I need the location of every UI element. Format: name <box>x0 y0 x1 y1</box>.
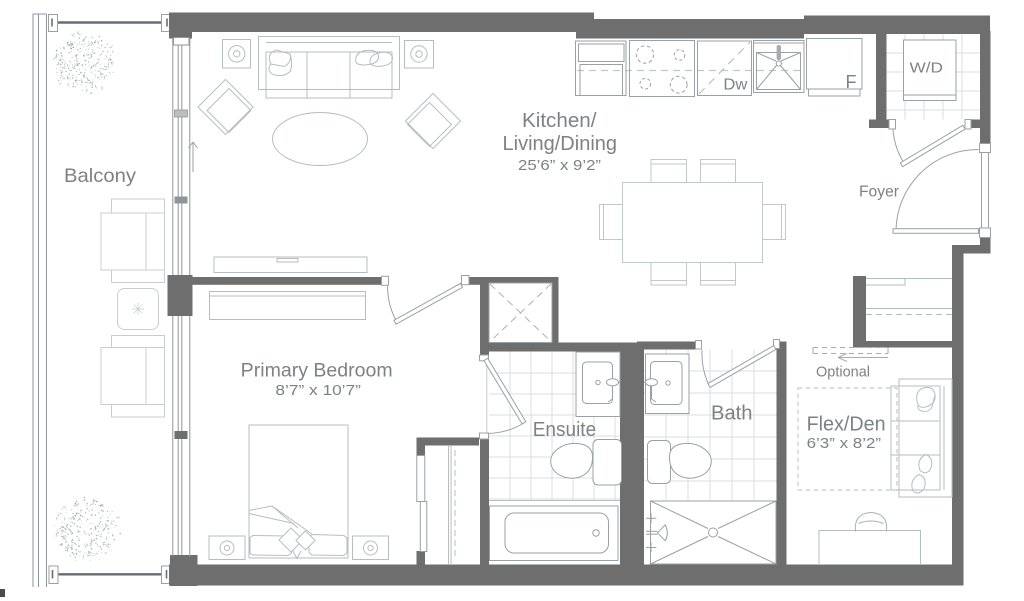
svg-text:W/D: W/D <box>910 60 944 77</box>
svg-text:Balcony: Balcony <box>64 165 136 187</box>
svg-text:Bath: Bath <box>711 402 753 425</box>
svg-text:Ensuite: Ensuite <box>533 418 597 441</box>
svg-text:Dw: Dw <box>723 77 748 94</box>
svg-text:6’3” x 8’2”: 6’3” x 8’2” <box>807 436 882 452</box>
svg-text:Primary Bedroom: Primary Bedroom <box>241 361 393 382</box>
svg-text:Foyer: Foyer <box>859 184 899 201</box>
svg-text:25’6” x 9’2”: 25’6” x 9’2” <box>518 157 601 174</box>
svg-text:Optional: Optional <box>816 364 870 381</box>
svg-text:8’7” x 10’7”: 8’7” x 10’7” <box>275 383 361 399</box>
svg-text:F: F <box>846 72 857 92</box>
svg-text:Kitchen/: Kitchen/ <box>522 109 597 132</box>
svg-text:Living/Dining: Living/Dining <box>503 132 618 155</box>
svg-text:Flex/Den: Flex/Den <box>807 413 886 436</box>
